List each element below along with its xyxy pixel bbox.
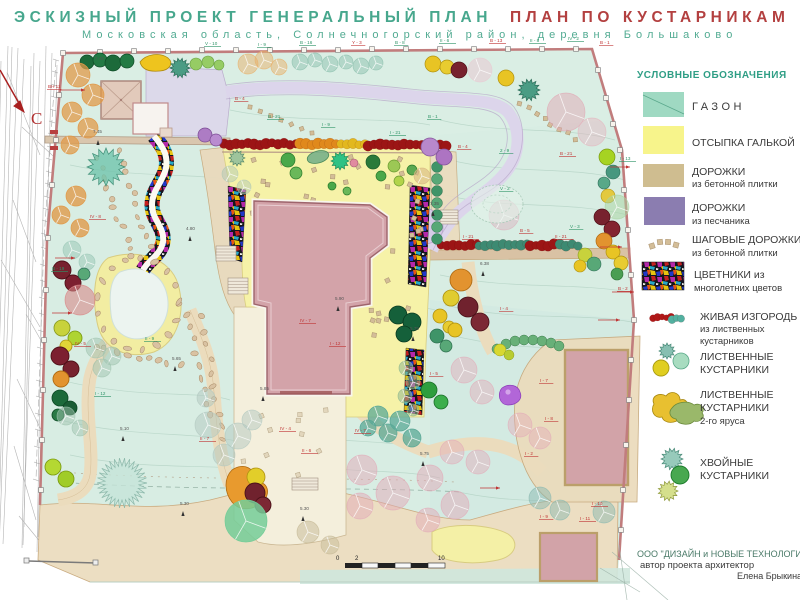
svg-text:IV - 7: IV - 7	[300, 318, 311, 323]
svg-text:I - 12: I - 12	[330, 341, 341, 346]
svg-text:В - 8: В - 8	[395, 40, 405, 45]
svg-text:КУСТАРНИКИ: КУСТАРНИКИ	[700, 402, 769, 414]
svg-text:IV - 5: IV - 5	[75, 341, 86, 346]
svg-text:7.35: 7.35	[430, 201, 439, 206]
svg-text:В - 13: В - 13	[490, 38, 503, 43]
svg-text:ШАГОВЫЕ ДОРОЖКИ: ШАГОВЫЕ ДОРОЖКИ	[692, 234, 800, 246]
svg-text:IV - 2: IV - 2	[568, 36, 579, 41]
svg-text:I - 12: I - 12	[95, 391, 106, 396]
svg-text:II - 21: II - 21	[555, 234, 567, 239]
svg-text:Y - 3: Y - 3	[352, 40, 362, 45]
svg-text:7.45: 7.45	[95, 56, 104, 61]
svg-text:ДОРОЖКИ: ДОРОЖКИ	[692, 166, 745, 178]
svg-text:из песчаника: из песчаника	[692, 216, 751, 227]
svg-text:5.30: 5.30	[180, 501, 189, 506]
svg-text:II - 9: II - 9	[145, 336, 155, 341]
svg-text:ОТСЫПКА ГАЛЬКОЙ: ОТСЫПКА ГАЛЬКОЙ	[692, 136, 795, 149]
svg-text:кустарников: кустарников	[700, 336, 754, 347]
svg-text:V - 2: V - 2	[500, 186, 510, 191]
svg-text:В - 4: В - 4	[458, 144, 468, 149]
svg-text:I - 21: I - 21	[390, 130, 401, 135]
svg-text:ЖИВАЯ ИЗГОРОДЬ: ЖИВАЯ ИЗГОРОДЬ	[700, 311, 797, 323]
svg-text:5.65: 5.65	[172, 356, 181, 361]
svg-text:V - 3: V - 3	[570, 224, 580, 229]
svg-text:II - 7: II - 7	[200, 436, 210, 441]
svg-text:ПЛАН ПО КУСТАРНИКАМ: ПЛАН ПО КУСТАРНИКАМ	[510, 9, 789, 26]
svg-text:5.85: 5.85	[260, 386, 269, 391]
svg-text:II - 8: II - 8	[530, 38, 540, 43]
svg-text:5.90: 5.90	[335, 296, 344, 301]
svg-text:ХВОЙНЫЕ: ХВОЙНЫЕ	[700, 456, 753, 469]
svg-text:В - 5: В - 5	[520, 228, 530, 233]
svg-text:2 - 9: 2 - 9	[500, 148, 510, 153]
svg-text:из лиственных: из лиственных	[700, 324, 765, 335]
svg-text:I - 5: I - 5	[430, 371, 438, 376]
svg-text:5.75: 5.75	[410, 326, 419, 331]
svg-text:7.45: 7.45	[93, 129, 102, 134]
svg-text:I - 8: I - 8	[545, 416, 553, 421]
svg-text:5.30: 5.30	[300, 506, 309, 511]
svg-text:С: С	[31, 109, 42, 128]
svg-text:IV - 7: IV - 7	[355, 428, 366, 433]
svg-text:5.75: 5.75	[420, 451, 429, 456]
svg-text:I - 9: I - 9	[322, 122, 330, 127]
svg-text:10: 10	[438, 556, 445, 562]
svg-text:IV - 4: IV - 4	[280, 426, 291, 431]
svg-text:ЛИСТВЕННЫЕ: ЛИСТВЕННЫЕ	[700, 389, 774, 401]
svg-text:6.38: 6.38	[480, 261, 489, 266]
svg-text:I - 13: I - 13	[620, 156, 631, 161]
svg-text:ЛИСТВЕННЫЕ: ЛИСТВЕННЫЕ	[700, 351, 774, 363]
svg-text:В - 19: В - 19	[52, 266, 65, 271]
svg-text:из бетонной плитки: из бетонной плитки	[692, 248, 778, 259]
svg-text:I - 2: I - 2	[525, 451, 533, 456]
svg-text:I - 9: I - 9	[258, 42, 266, 47]
svg-text:В - 1: В - 1	[428, 114, 438, 119]
svg-text:I - 4: I - 4	[500, 306, 508, 311]
svg-text:Московская область, Солнечного: Московская область, Солнечногорский райо…	[82, 29, 737, 41]
svg-text:КУСТАРНИКИ: КУСТАРНИКИ	[700, 364, 769, 376]
svg-text:Елена Брыкина: Елена Брыкина	[737, 571, 800, 581]
svg-text:ООО "ДИЗАЙН и НОВЫЕ ТЕХНОЛОГИИ: ООО "ДИЗАЙН и НОВЫЕ ТЕХНОЛОГИИ	[637, 548, 800, 559]
svg-text:IV - 8: IV - 8	[90, 214, 101, 219]
svg-text:ВН 11: ВН 11	[48, 84, 61, 89]
svg-text:многолетних цветов: многолетних цветов	[694, 283, 782, 294]
svg-text:ЭСКИЗНЫЙ ПРОЕКТ ГЕНЕРАЛЬНЫЙ ПЛ: ЭСКИЗНЫЙ ПРОЕКТ ГЕНЕРАЛЬНЫЙ ПЛАН	[14, 8, 492, 26]
svg-text:ГАЗОН: ГАЗОН	[692, 101, 745, 113]
svg-text:В - 1: В - 1	[600, 40, 610, 45]
svg-text:2-го яруса: 2-го яруса	[700, 416, 745, 427]
svg-text:В - 21: В - 21	[268, 114, 281, 119]
svg-text:В - 16: В - 16	[300, 40, 313, 45]
svg-text:автор проекта архитектор: автор проекта архитектор	[640, 560, 754, 571]
svg-text:В - 4: В - 4	[235, 96, 245, 101]
svg-text:I - 9: I - 9	[540, 514, 548, 519]
svg-text:4.80: 4.80	[186, 226, 195, 231]
svg-text:I - 11: I - 11	[580, 516, 591, 521]
svg-text:УСЛОВНЫЕ ОБОЗНАЧЕНИЯ: УСЛОВНЫЕ ОБОЗНАЧЕНИЯ	[637, 70, 787, 81]
svg-text:ЦВЕТНИКИ из: ЦВЕТНИКИ из	[694, 269, 765, 281]
svg-text:II - 6: II - 6	[302, 448, 312, 453]
svg-text:В - 2: В - 2	[618, 286, 628, 291]
svg-text:ДОРОЖКИ: ДОРОЖКИ	[692, 202, 745, 214]
svg-text:I - 21: I - 21	[463, 234, 474, 239]
svg-text:5.10: 5.10	[120, 426, 129, 431]
svg-text:V - 10: V - 10	[205, 41, 218, 46]
svg-text:I - 7: I - 7	[540, 378, 548, 383]
svg-text:из бетонной плитки: из бетонной плитки	[692, 179, 778, 190]
svg-text:I - 10: I - 10	[592, 501, 603, 506]
svg-text:КУСТАРНИКИ: КУСТАРНИКИ	[700, 470, 769, 482]
svg-text:В - 21: В - 21	[560, 151, 573, 156]
svg-text:II - 6: II - 6	[440, 38, 450, 43]
